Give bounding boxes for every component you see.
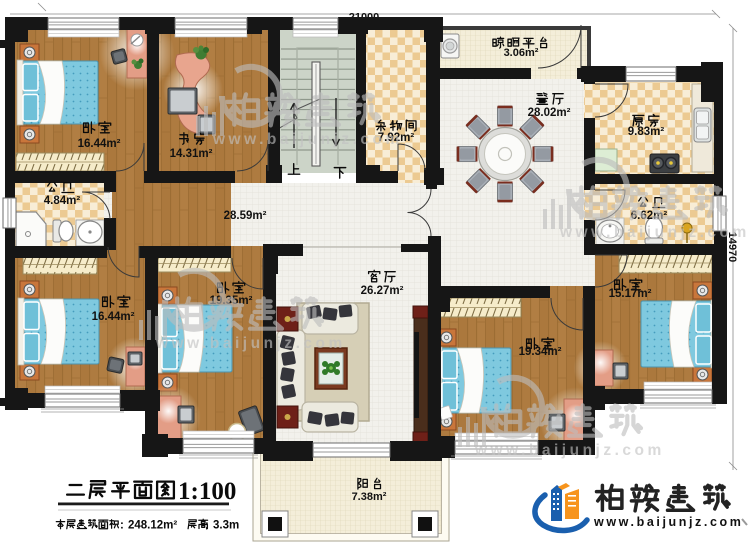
svg-text:9.83m²: 9.83m² [628,126,665,138]
svg-text:26.27m²: 26.27m² [361,285,404,297]
svg-text:www.baijunjz.com: www.baijunjz.com [559,224,750,241]
svg-text:248.12m²: 248.12m² [128,520,177,532]
svg-text:www.baijunjz.com: www.baijunjz.com [212,131,403,148]
svg-text:15.17m²: 15.17m² [609,288,652,300]
svg-text:16.44m²: 16.44m² [92,311,135,323]
svg-text:1:100: 1:100 [178,478,236,505]
svg-text:www.baijunjz.com: www.baijunjz.com [474,442,665,459]
svg-text:www.baijunjz.com: www.baijunjz.com [593,515,743,529]
svg-text:16.44m²: 16.44m² [78,138,121,150]
svg-text:19.34m²: 19.34m² [519,346,562,358]
svg-text::: : [120,520,124,532]
svg-text:28.59m²: 28.59m² [224,210,267,222]
svg-text:14.31m²: 14.31m² [170,148,213,160]
svg-text::: : [205,520,209,532]
svg-text:www.baijunjz.com: www.baijunjz.com [155,335,346,352]
svg-text:3.06m²: 3.06m² [504,47,539,59]
svg-text:7.38m²: 7.38m² [352,491,387,503]
svg-text:28.02m²: 28.02m² [528,107,571,119]
svg-text:3.3m: 3.3m [213,520,239,532]
svg-text:4.84m²: 4.84m² [44,195,81,207]
